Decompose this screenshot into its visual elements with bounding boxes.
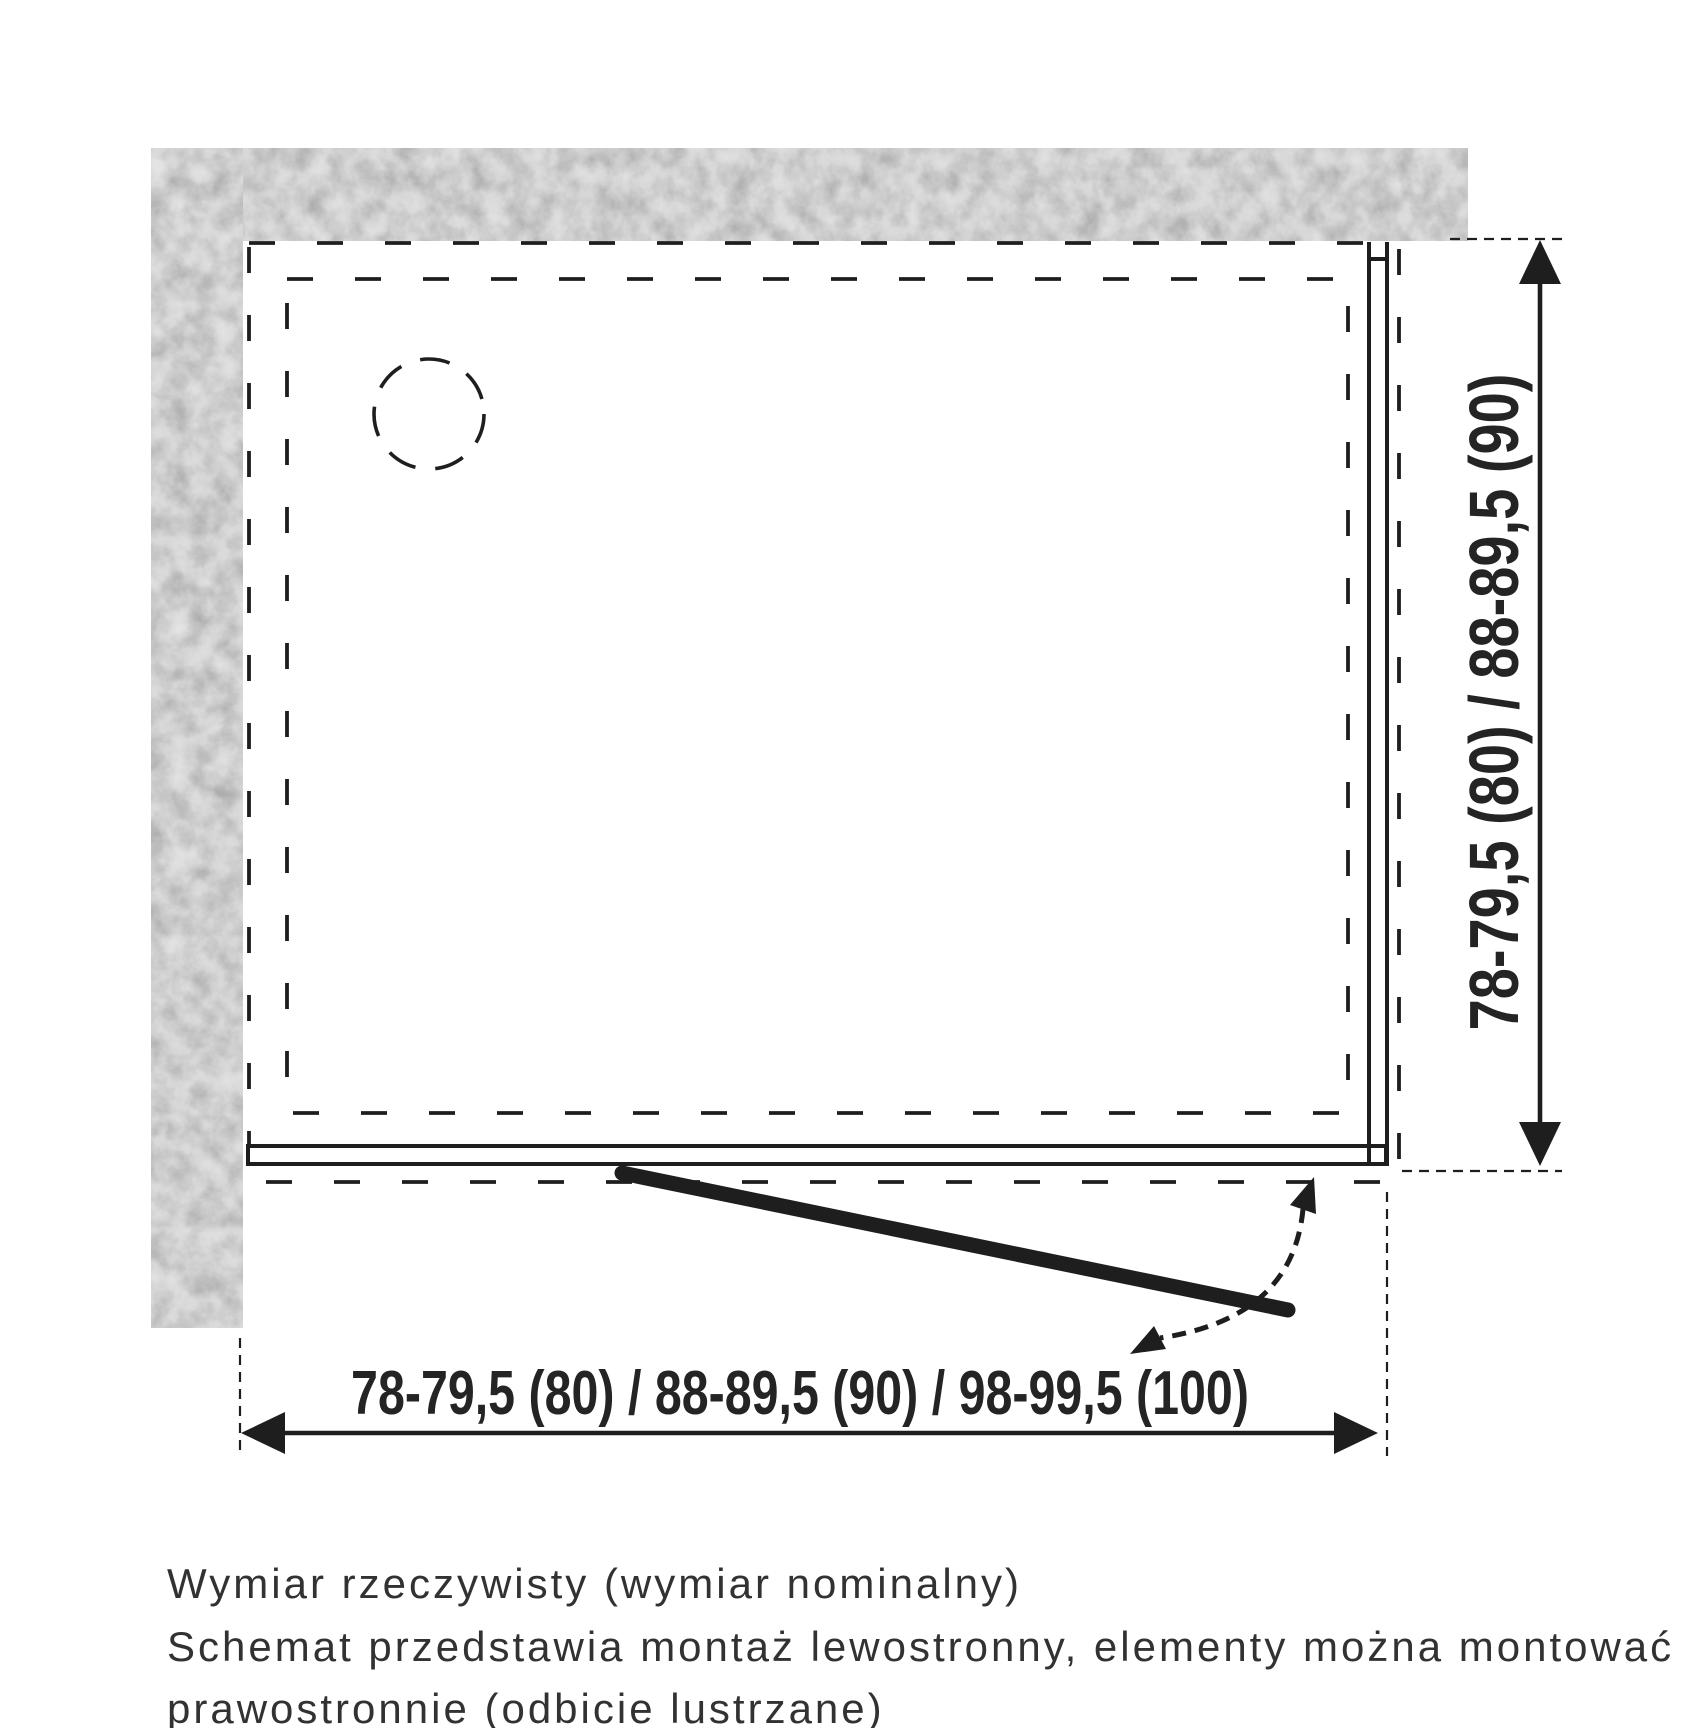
tray-outer-outline: [249, 243, 1399, 1182]
door-swing-arrowhead-down: [1130, 1326, 1166, 1354]
door-leaf: [622, 1173, 1288, 1310]
diagram-drawing: [0, 0, 1701, 1728]
wall-top: [151, 148, 1468, 241]
note-line-1: Wymiar rzeczywisty (wymiar nominalny): [167, 1563, 1022, 1605]
drain-circle: [374, 359, 484, 469]
height-dimension-text: 78-79,5 (80) / 88-89,5 (90): [1459, 374, 1529, 1031]
tray-inner-outline: [287, 279, 1348, 1113]
wall-left: [151, 148, 243, 1328]
height-dimension-label: 78-79,5 (80) / 88-89,5 (90): [1459, 291, 1529, 1112]
door-swing-arc: [1160, 1209, 1303, 1338]
note-line-3: prawostronnie (odbicie lustrzane): [167, 1688, 885, 1728]
width-dimension-label: 78-79,5 (80) / 88-89,5 (90) / 98-99,5 (1…: [224, 1363, 1375, 1425]
note-line-2: Schemat przedstawia montaż lewostronny, …: [167, 1626, 1674, 1668]
width-dimension-text: 78-79,5 (80) / 88-89,5 (90) / 98-99,5 (1…: [351, 1363, 1249, 1425]
installation-diagram: 78-79,5 (80) / 88-89,5 (90) / 98-99,5 (1…: [0, 0, 1701, 1728]
